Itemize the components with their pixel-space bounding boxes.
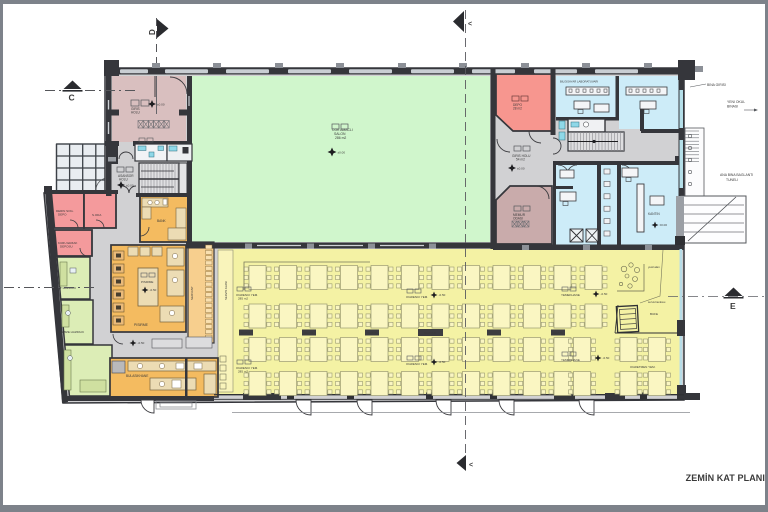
svg-text:BILGISAYAR LABORATUVARI: BILGISAYAR LABORATUVARI (560, 80, 598, 84)
svg-text:-0.50: -0.50 (601, 292, 608, 296)
svg-text:SERVIS B.: SERVIS B. (424, 331, 437, 335)
svg-text:-0.50: -0.50 (138, 341, 145, 345)
svg-text:BANK: BANK (157, 219, 167, 223)
svg-text:28 m2: 28 m2 (513, 107, 522, 111)
svg-text:-0.50: -0.50 (150, 288, 157, 292)
svg-text:BINA GIRISI: BINA GIRISI (707, 83, 726, 87)
svg-text:HOLU: HOLU (131, 111, 141, 115)
svg-text:SERVIS: SERVIS (304, 331, 314, 335)
svg-text:E: E (730, 301, 736, 311)
svg-text:OGRETMEN YEM.: OGRETMEN YEM. (630, 365, 656, 369)
svg-text:OGRENCI YEM.: OGRENCI YEM. (406, 295, 428, 299)
svg-text:BULASIKHANE: BULASIKHANE (126, 374, 148, 378)
svg-text:SERVIS ALANI: SERVIS ALANI (224, 281, 228, 300)
svg-text:ANA BINA BAGLANTI: ANA BINA BAGLANTI (720, 173, 753, 177)
svg-text:±0.00: ±0.00 (338, 151, 346, 155)
svg-text:SEBZE HAZIRLIK: SEBZE HAZIRLIK (60, 330, 84, 334)
svg-text:D: D (148, 29, 157, 35)
svg-text:servis bankosu: servis bankosu (648, 300, 666, 304)
svg-text:-0.50: -0.50 (603, 356, 610, 360)
svg-text:54 m2: 54 m2 (516, 158, 525, 162)
svg-text:-0.50: -0.50 (439, 360, 446, 364)
svg-text:ODASI: ODASI (513, 217, 523, 221)
svg-text:SERVIS: SERVIS (553, 331, 563, 335)
svg-text:yesil alan: yesil alan (648, 265, 660, 269)
svg-text:PISIRME: PISIRME (141, 280, 153, 284)
svg-text:SERVANT: SERVANT (190, 286, 194, 300)
svg-text:OGRENCI YEM.: OGRENCI YEM. (406, 362, 428, 366)
svg-text:KANTIN: KANTIN (648, 212, 660, 216)
svg-text:TUNELI: TUNELI (726, 178, 738, 182)
svg-text:YEMEKHANE: YEMEKHANE (561, 358, 580, 362)
svg-text:PISIRME: PISIRME (134, 323, 149, 327)
svg-text:<: < (469, 462, 473, 469)
svg-text:-0.50: -0.50 (439, 293, 446, 297)
svg-text:YEMEKHANE: YEMEKHANE (561, 293, 580, 297)
svg-text:286 m2: 286 m2 (335, 136, 346, 140)
svg-text:±0.00: ±0.00 (157, 103, 165, 107)
svg-text:YENI OKUL: YENI OKUL (727, 100, 745, 104)
svg-text:DEPOSU: DEPOSU (60, 245, 73, 249)
svg-text:285 m2: 285 m2 (238, 297, 248, 301)
svg-text:ZEMİN KAT PLANI: ZEMİN KAT PLANI (686, 473, 765, 483)
svg-text:BINASI: BINASI (727, 105, 738, 109)
svg-text:DEPO: DEPO (58, 213, 67, 217)
svg-text:C: C (69, 93, 75, 103)
svg-text:BUFE: BUFE (650, 312, 658, 316)
svg-text:SERVIS: SERVIS (241, 331, 251, 335)
svg-text:±0.00: ±0.00 (517, 167, 525, 171)
svg-text:285 m2: 285 m2 (238, 370, 248, 374)
svg-text:±0.00: ±0.00 (660, 223, 668, 227)
svg-text:S.ODA: S.ODA (92, 213, 101, 217)
svg-text:HOLU: HOLU (119, 178, 129, 182)
svg-text:SERVIS: SERVIS (367, 331, 377, 335)
svg-text:<: < (468, 21, 472, 28)
